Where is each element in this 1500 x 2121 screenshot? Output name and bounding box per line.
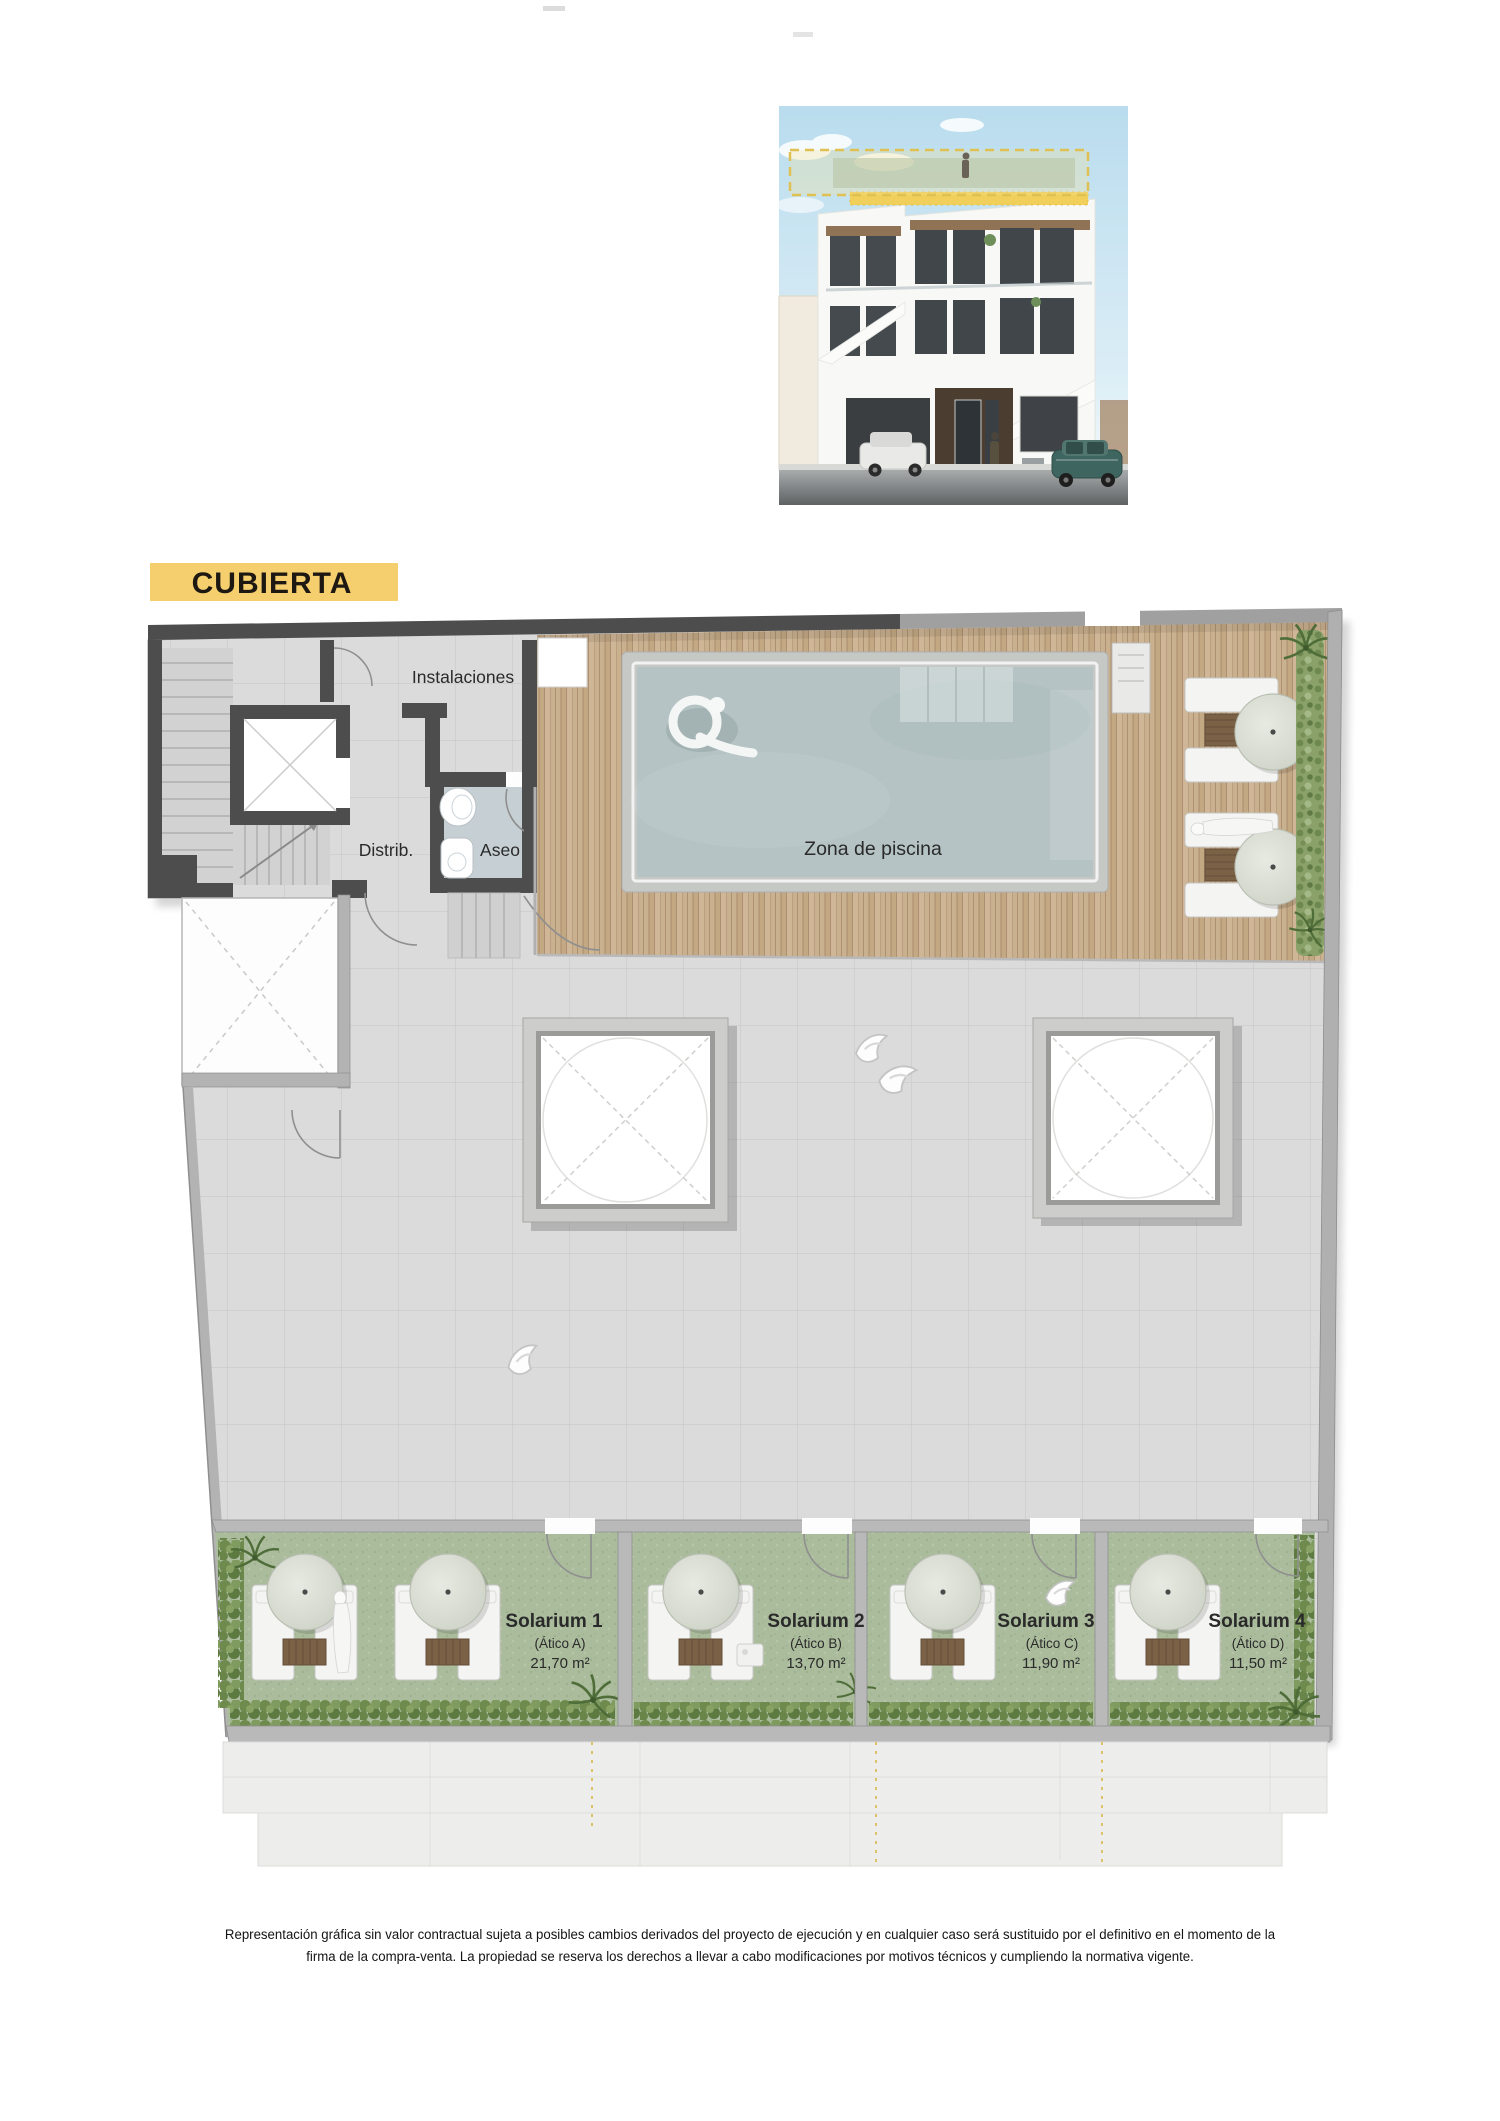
svg-text:21,70 m²: 21,70 m² xyxy=(530,1655,589,1672)
building-render xyxy=(776,106,1128,505)
entry-door xyxy=(955,400,981,470)
toilet-icon xyxy=(441,838,473,878)
artifact-mark xyxy=(543,6,565,11)
pool-steps xyxy=(900,667,1013,722)
floor-plan: Zona de piscina xyxy=(148,606,1350,1866)
svg-text:11,50 m²: 11,50 m² xyxy=(1229,1655,1287,1672)
disclaimer-text: Representación gráfica sin valor contrac… xyxy=(15,1924,1485,1969)
instalaciones-label: Instalaciones xyxy=(412,667,514,687)
pool-shelf xyxy=(1050,690,1093,860)
towel-cabinet xyxy=(1112,643,1150,713)
svg-text:Solarium 1: Solarium 1 xyxy=(505,1611,603,1632)
skylight-1 xyxy=(523,1018,737,1231)
disclaimer-line-2: firma de la compra-venta. La propiedad s… xyxy=(15,1946,1485,1968)
svg-text:11,90 m²: 11,90 m² xyxy=(1022,1655,1080,1672)
svg-text:Solarium 3: Solarium 3 xyxy=(997,1611,1094,1632)
lower-roof-bands xyxy=(223,1742,1327,1866)
svg-text:(Ático B): (Ático B) xyxy=(790,1636,842,1651)
skylight-2 xyxy=(1033,1018,1242,1226)
neighbor-building-left xyxy=(779,296,820,470)
floor-title: CUBIERTA xyxy=(192,567,353,600)
entry-person-silhouette xyxy=(990,432,999,469)
distrib-label: Distrib. xyxy=(359,840,413,860)
pool-zone-label: Zona de piscina xyxy=(804,838,942,860)
swimming-pool: Zona de piscina xyxy=(622,652,1108,892)
brochure-page: CUBIERTA xyxy=(0,0,1500,2121)
svg-text:(Ático A): (Ático A) xyxy=(534,1636,585,1651)
svg-text:13,70 m²: 13,70 m² xyxy=(786,1655,845,1672)
artifact-mark xyxy=(793,32,813,37)
disclaimer-line-1: Representación gráfica sin valor contrac… xyxy=(15,1924,1485,1946)
deck-shaft-opening xyxy=(538,638,587,687)
svg-text:(Ático D): (Ático D) xyxy=(1232,1636,1285,1651)
svg-text:Solarium 4: Solarium 4 xyxy=(1208,1611,1306,1632)
rooftop-person-silhouette xyxy=(962,153,970,179)
vent-grille xyxy=(1022,458,1044,465)
hedge-strip xyxy=(1296,630,1324,956)
rooftop-highlight-box xyxy=(790,150,1088,195)
aseo-room xyxy=(440,772,524,878)
floor-title-badge: CUBIERTA xyxy=(150,563,398,601)
svg-text:(Ático C): (Ático C) xyxy=(1026,1636,1079,1651)
sink-icon xyxy=(440,788,476,826)
side-table-items xyxy=(737,1644,763,1666)
lightwell-void xyxy=(182,895,350,1088)
aseo-label: Aseo xyxy=(480,840,520,860)
parapet-notch xyxy=(1085,606,1140,626)
svg-text:Solarium 2: Solarium 2 xyxy=(767,1611,864,1632)
solarium-row: Solarium 1 (Ático A) 21,70 m² Solarium 2… xyxy=(212,1518,1330,1742)
elevator xyxy=(230,705,350,825)
